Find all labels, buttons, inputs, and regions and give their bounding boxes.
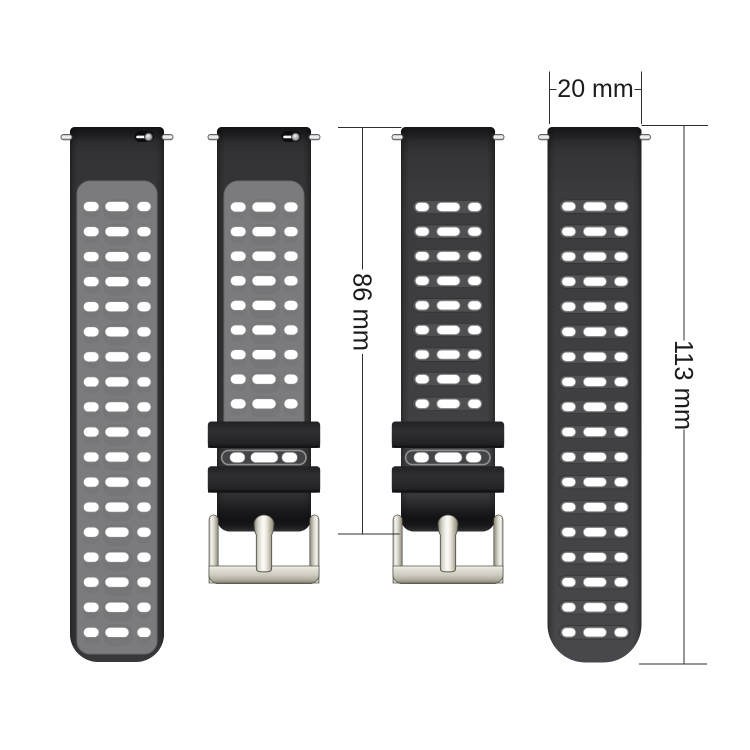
svg-text:86 mm: 86 mm [348,273,376,351]
svg-text:113 mm: 113 mm [669,340,697,430]
svg-text:20 mm: 20 mm [557,75,633,103]
